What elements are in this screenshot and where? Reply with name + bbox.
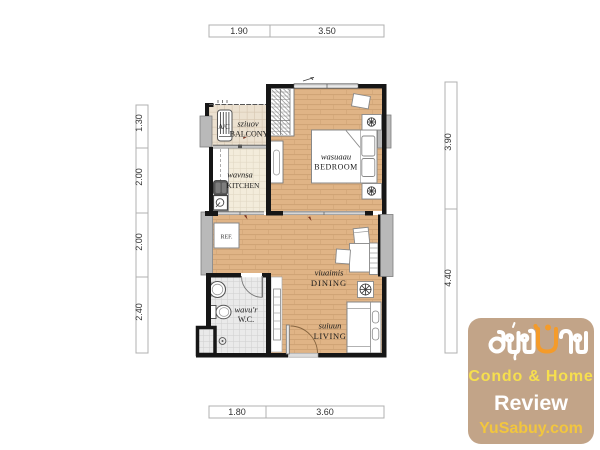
svg-text:KITCHEN: KITCHEN [227,181,260,190]
svg-text:1.30: 1.30 [134,114,144,132]
svg-text:REF.: REF. [220,235,233,241]
svg-text:wasuaau: wasuaau [321,152,351,162]
svg-text:Condo & Home: Condo & Home [468,368,593,385]
svg-text:4.40: 4.40 [443,269,453,287]
svg-text:BEDROOM: BEDROOM [314,163,358,172]
svg-text:3.50: 3.50 [318,26,336,36]
svg-text:2.00: 2.00 [134,233,144,251]
svg-text:W.C.: W.C. [238,315,254,324]
svg-text:2.40: 2.40 [134,303,144,321]
svg-text:BALCONY: BALCONY [230,130,269,139]
svg-text:1.90: 1.90 [230,26,248,36]
svg-text:YuSabuy.com: YuSabuy.com [479,420,583,437]
svg-text:wavu'r: wavu'r [234,305,258,315]
svg-text:3.90: 3.90 [443,133,453,151]
svg-text:A/C: A/C [218,123,230,131]
svg-text:sziuov: sziuov [237,119,258,129]
svg-text:3.60: 3.60 [316,407,334,417]
svg-text:1.80: 1.80 [228,407,246,417]
svg-text:suiuun: suiuun [319,321,342,331]
svg-text:wavnsa: wavnsa [227,170,253,180]
svg-text:viuaimis: viuaimis [315,268,344,278]
svg-text:LIVING: LIVING [314,331,347,341]
svg-text:DINING: DINING [311,278,347,288]
svg-text:Review: Review [494,391,568,415]
svg-text:2.00: 2.00 [134,168,144,186]
